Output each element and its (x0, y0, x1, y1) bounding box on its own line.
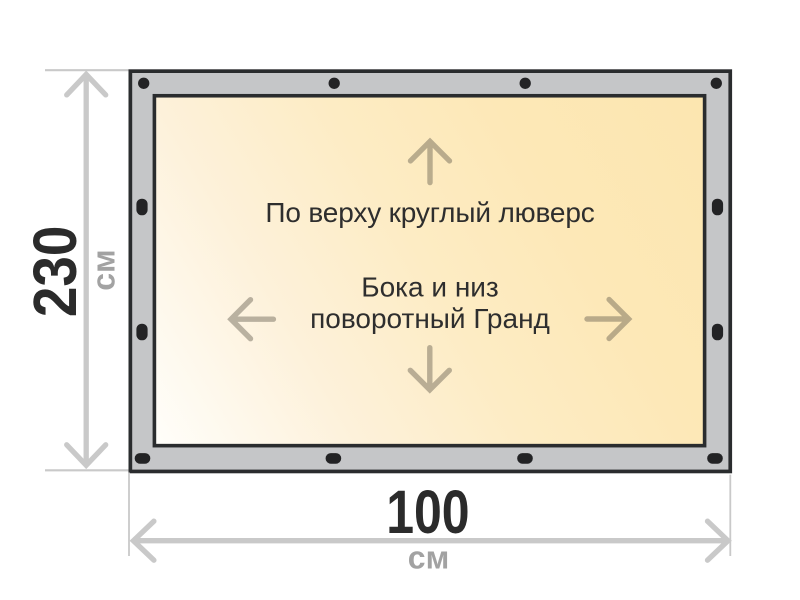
svg-text:поворотный Гранд: поворотный Гранд (310, 303, 550, 334)
svg-text:см: см (86, 249, 122, 290)
svg-text:Бока и низ: Бока и низ (361, 272, 499, 303)
svg-text:По верху круглый люверс: По верху круглый люверс (265, 197, 594, 228)
svg-text:100: 100 (386, 478, 469, 546)
svg-text:230: 230 (21, 226, 89, 318)
svg-text:см: см (408, 540, 449, 576)
